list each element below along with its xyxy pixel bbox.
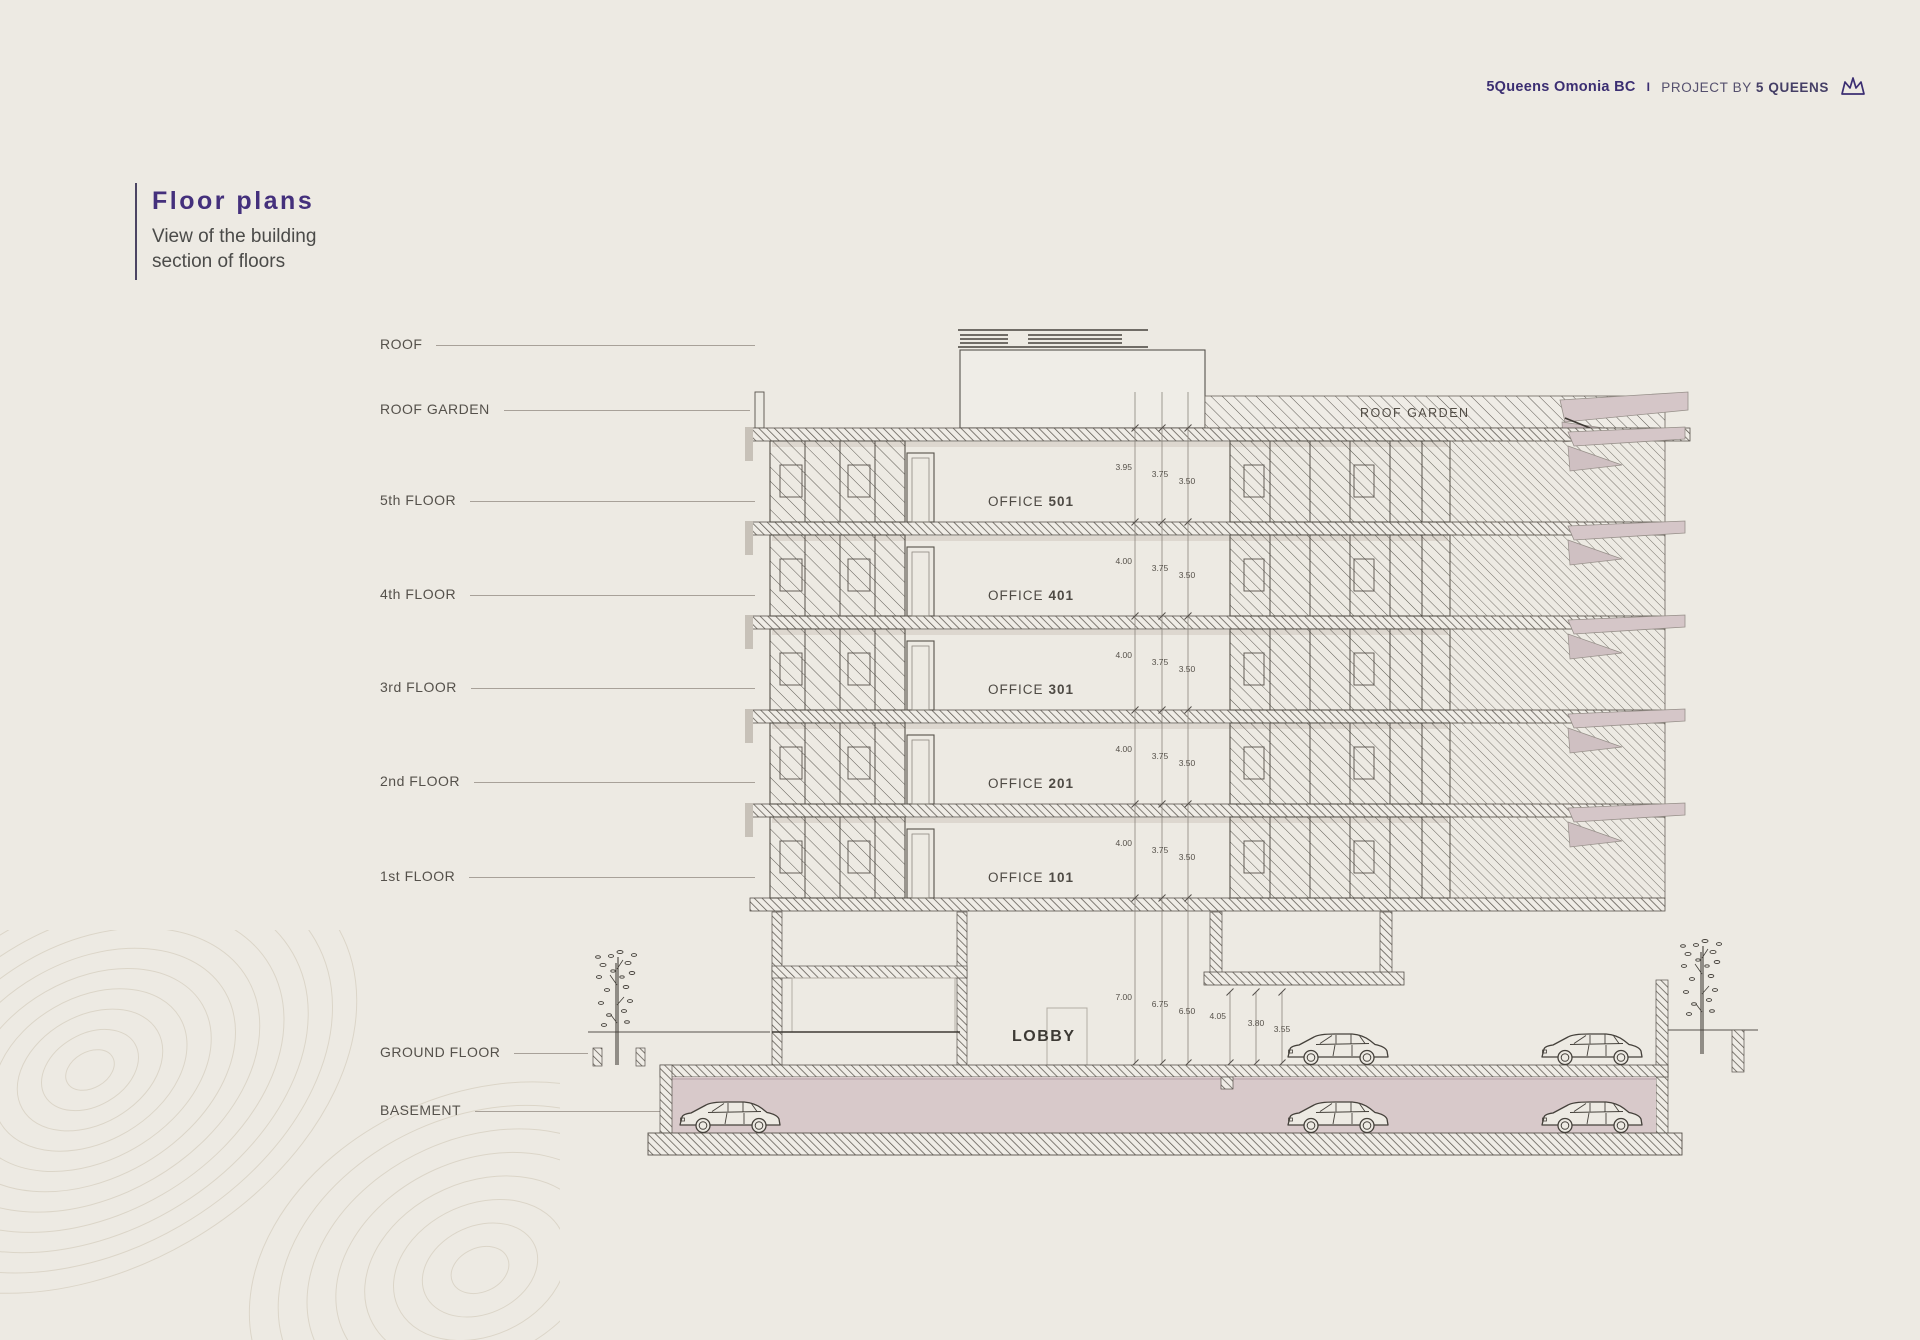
brand-separator: I	[1647, 80, 1651, 94]
office-101-label: OFFICE101	[988, 870, 1074, 885]
header-brand: 5Queens Omonia BC I PROJECT BY 5 QUEENS	[1486, 74, 1868, 100]
office-501-label: OFFICE501	[988, 494, 1074, 509]
floor-label-ground: GROUND FLOOR	[380, 1042, 588, 1062]
svg-text:3.50: 3.50	[1179, 664, 1196, 674]
svg-text:3.80: 3.80	[1248, 1018, 1265, 1028]
svg-text:6.50: 6.50	[1179, 1006, 1196, 1016]
office-301-label: OFFICE301	[988, 682, 1074, 697]
brand-name: 5Queens Omonia BC	[1486, 79, 1635, 95]
svg-text:4.00: 4.00	[1115, 838, 1132, 848]
title-block: Floor plans View of the building section…	[135, 183, 316, 280]
svg-text:3.50: 3.50	[1179, 852, 1196, 862]
office-labels: OFFICE501 OFFICE401 OFFICE301 OFFICE201 …	[988, 494, 1074, 885]
building-section-drawing: ROOF GARDEN OFFICE501 OFFICE401 OFFICE30…	[560, 300, 1760, 1180]
svg-text:3.50: 3.50	[1179, 476, 1196, 486]
svg-text:3.75: 3.75	[1152, 657, 1169, 667]
svg-text:4.00: 4.00	[1115, 744, 1132, 754]
roof-garden-label: ROOF GARDEN	[1360, 406, 1470, 420]
page-title: Floor plans	[152, 187, 316, 216]
crown-icon	[1838, 74, 1868, 100]
svg-text:7.00: 7.00	[1115, 992, 1132, 1002]
lobby-label: LOBBY	[1012, 1028, 1076, 1045]
rooftop-core	[958, 330, 1205, 428]
basement	[648, 1065, 1682, 1155]
svg-text:3.75: 3.75	[1152, 751, 1169, 761]
brochure-page: 5Queens Omonia BC I PROJECT BY 5 QUEENS …	[0, 0, 1920, 1340]
office-201-label: OFFICE201	[988, 776, 1074, 791]
svg-text:4.00: 4.00	[1115, 650, 1132, 660]
svg-text:3.50: 3.50	[1179, 570, 1196, 580]
car-ground-1	[1288, 1034, 1388, 1065]
contour-decoration	[0, 930, 560, 1340]
tree-right	[1681, 940, 1722, 1055]
svg-text:3.50: 3.50	[1179, 758, 1196, 768]
svg-text:3.75: 3.75	[1152, 469, 1169, 479]
svg-text:6.75: 6.75	[1152, 999, 1169, 1009]
svg-text:3.75: 3.75	[1152, 845, 1169, 855]
car-ground-2	[1542, 1034, 1642, 1065]
svg-text:3.75: 3.75	[1152, 563, 1169, 573]
project-by-text: PROJECT BY 5 QUEENS	[1661, 80, 1829, 95]
svg-text:3.55: 3.55	[1274, 1024, 1291, 1034]
svg-text:4.05: 4.05	[1209, 1011, 1226, 1021]
svg-text:4.00: 4.00	[1115, 556, 1132, 566]
page-subtitle: View of the building section of floors	[152, 224, 316, 274]
svg-text:3.95: 3.95	[1115, 462, 1132, 472]
office-401-label: OFFICE401	[988, 588, 1074, 603]
